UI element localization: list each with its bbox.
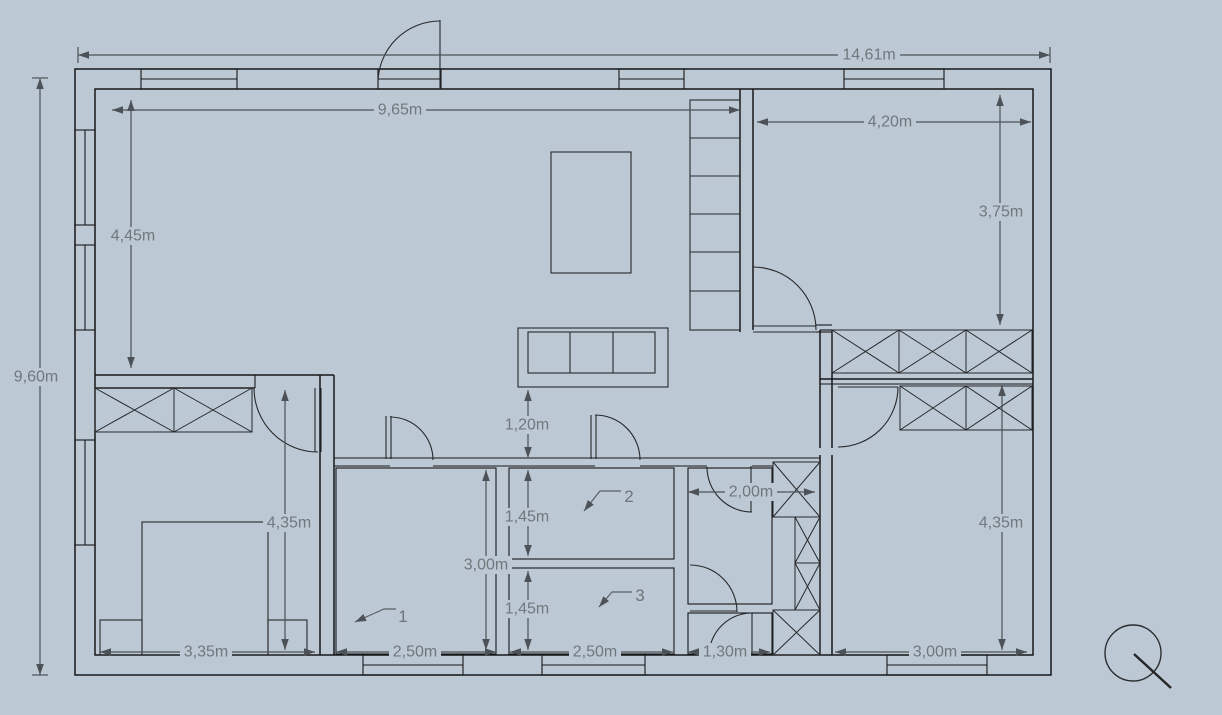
table	[551, 152, 631, 273]
dimension-bedroom-tr-height: 3,75m	[976, 95, 1028, 325]
wc-inner-door	[690, 565, 737, 612]
dimension-bedroom-tr-width: 4,20m	[757, 113, 1031, 131]
dimension-room1-height: 3,00m	[460, 470, 512, 650]
dimension-living-height: 4,45m	[107, 100, 159, 368]
doors	[254, 20, 898, 656]
room-walls	[336, 468, 772, 654]
exterior-walls	[75, 69, 1051, 675]
furniture	[100, 100, 740, 655]
wardrobe-bedroom-br	[900, 386, 1032, 430]
window-top-3	[844, 69, 944, 89]
dimension-bathroom-width: 2,00m	[688, 483, 815, 501]
dimension-label: 3,00m	[464, 557, 508, 574]
window-top-1	[141, 69, 237, 89]
dimensions-layer: 14,61m 9,60m 9,65m 4,45m 4,20m 3,75m	[8, 46, 1050, 675]
dimension-bedroom-br-width: 3,00m	[835, 643, 1027, 661]
dimension-label: 2,50m	[573, 644, 617, 661]
dimension-wc-width: 1,30m	[688, 643, 770, 661]
dimension-label: 3,75m	[979, 204, 1023, 221]
bedroom-br-door	[838, 387, 898, 447]
bedroom-bl-door	[254, 388, 321, 452]
dimension-bedroom-bl-width: 3,35m	[100, 643, 315, 661]
dimension-overall-height: 9,60m	[8, 78, 66, 675]
dimension-label: 3,00m	[913, 644, 957, 661]
dimension-label: 4,45m	[111, 228, 155, 245]
nightstand-right	[268, 620, 307, 655]
dimension-label: 1,45m	[505, 601, 549, 618]
dimension-label: 1,30m	[703, 644, 747, 661]
window-top-2	[619, 69, 684, 89]
bed	[100, 522, 307, 655]
room1-number: 1	[398, 607, 407, 626]
dimension-bedroom-br-height: 4,35m	[975, 385, 1027, 650]
dimension-label: 1,20m	[505, 417, 549, 434]
windows	[75, 69, 987, 675]
interior-walls	[95, 89, 1033, 655]
dimension-label: 14,61m	[842, 47, 895, 64]
room3-label: 3	[599, 586, 645, 607]
dimension-hall-width: 1,20m	[501, 390, 553, 458]
floor-plan: 14,61m 9,60m 9,65m 4,45m 4,20m 3,75m	[0, 0, 1222, 715]
window-left-2	[75, 245, 95, 330]
closet-shaft-strip	[773, 462, 820, 655]
dimension-room3-width: 2,50m	[510, 643, 673, 661]
room2-label: 2	[584, 487, 634, 511]
dimension-label: 1,45m	[505, 509, 549, 526]
kitchen-shelf	[690, 100, 740, 330]
room1-label: 1	[355, 607, 408, 626]
room2-door	[591, 415, 640, 460]
window-left-3	[75, 440, 95, 545]
drawing-canvas[interactable]: 14,61m 9,60m 9,65m 4,45m 4,20m 3,75m	[0, 0, 1222, 715]
room2-number: 2	[624, 487, 633, 506]
dimension-label: 2,00m	[729, 484, 773, 501]
dimension-room1-width: 2,50m	[336, 643, 496, 661]
dimension-bedroom-bl-height: 4,35m	[263, 390, 315, 650]
entry-door	[378, 20, 440, 88]
dimension-overall-width: 14,61m	[78, 46, 1050, 64]
entry-threshold	[378, 69, 441, 89]
zoom-tool-cursor-icon	[1105, 625, 1171, 688]
dimension-label: 2,50m	[393, 644, 437, 661]
room3-number: 3	[635, 586, 644, 605]
dimension-living-width: 9,65m	[112, 101, 740, 119]
dimension-label: 3,35m	[184, 644, 228, 661]
wardrobe-bedroom-bl	[95, 388, 252, 432]
window-left-1	[75, 130, 95, 225]
room1-door	[386, 416, 433, 460]
wardrobe-bedroom-tr	[832, 330, 1032, 373]
nightstand-left	[100, 620, 142, 655]
dimension-label: 4,35m	[267, 515, 311, 532]
sofa	[518, 328, 668, 387]
dimension-label: 9,65m	[378, 102, 422, 119]
dimension-label: 4,35m	[979, 515, 1023, 532]
dimension-label: 4,20m	[868, 114, 912, 131]
dimension-label: 9,60m	[14, 369, 58, 386]
bedroom-tr-door	[753, 267, 816, 332]
